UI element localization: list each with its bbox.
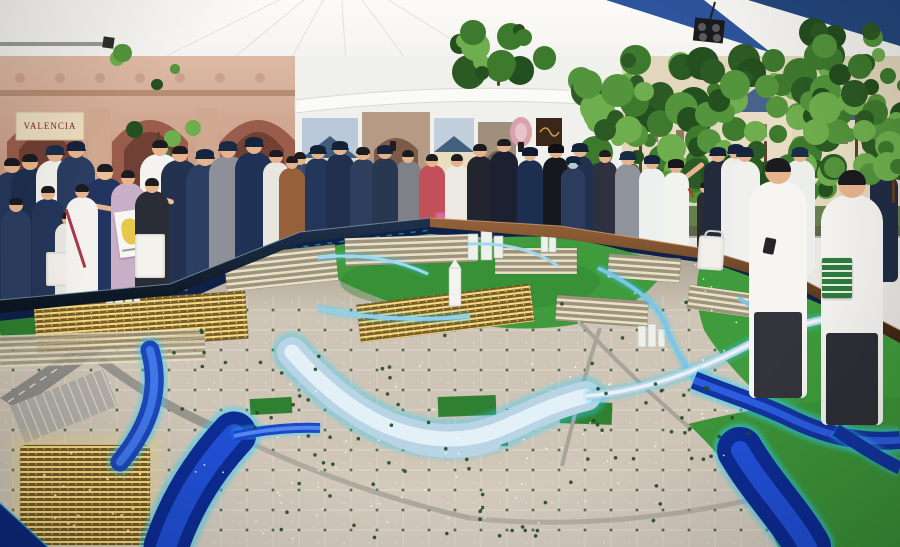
trousers [754, 312, 802, 398]
white-handbag [697, 235, 725, 271]
person [821, 170, 882, 425]
glasses-icon [768, 170, 788, 172]
brochure-boxes [822, 258, 852, 298]
event-photo: VALENCIA [0, 0, 900, 547]
glasses-icon [841, 183, 863, 185]
tree-foliage [853, 120, 875, 142]
foreground-layer [0, 0, 900, 547]
person [749, 158, 807, 398]
bag-handle [704, 230, 724, 239]
tree-foliage [890, 159, 900, 175]
trousers [826, 333, 877, 425]
